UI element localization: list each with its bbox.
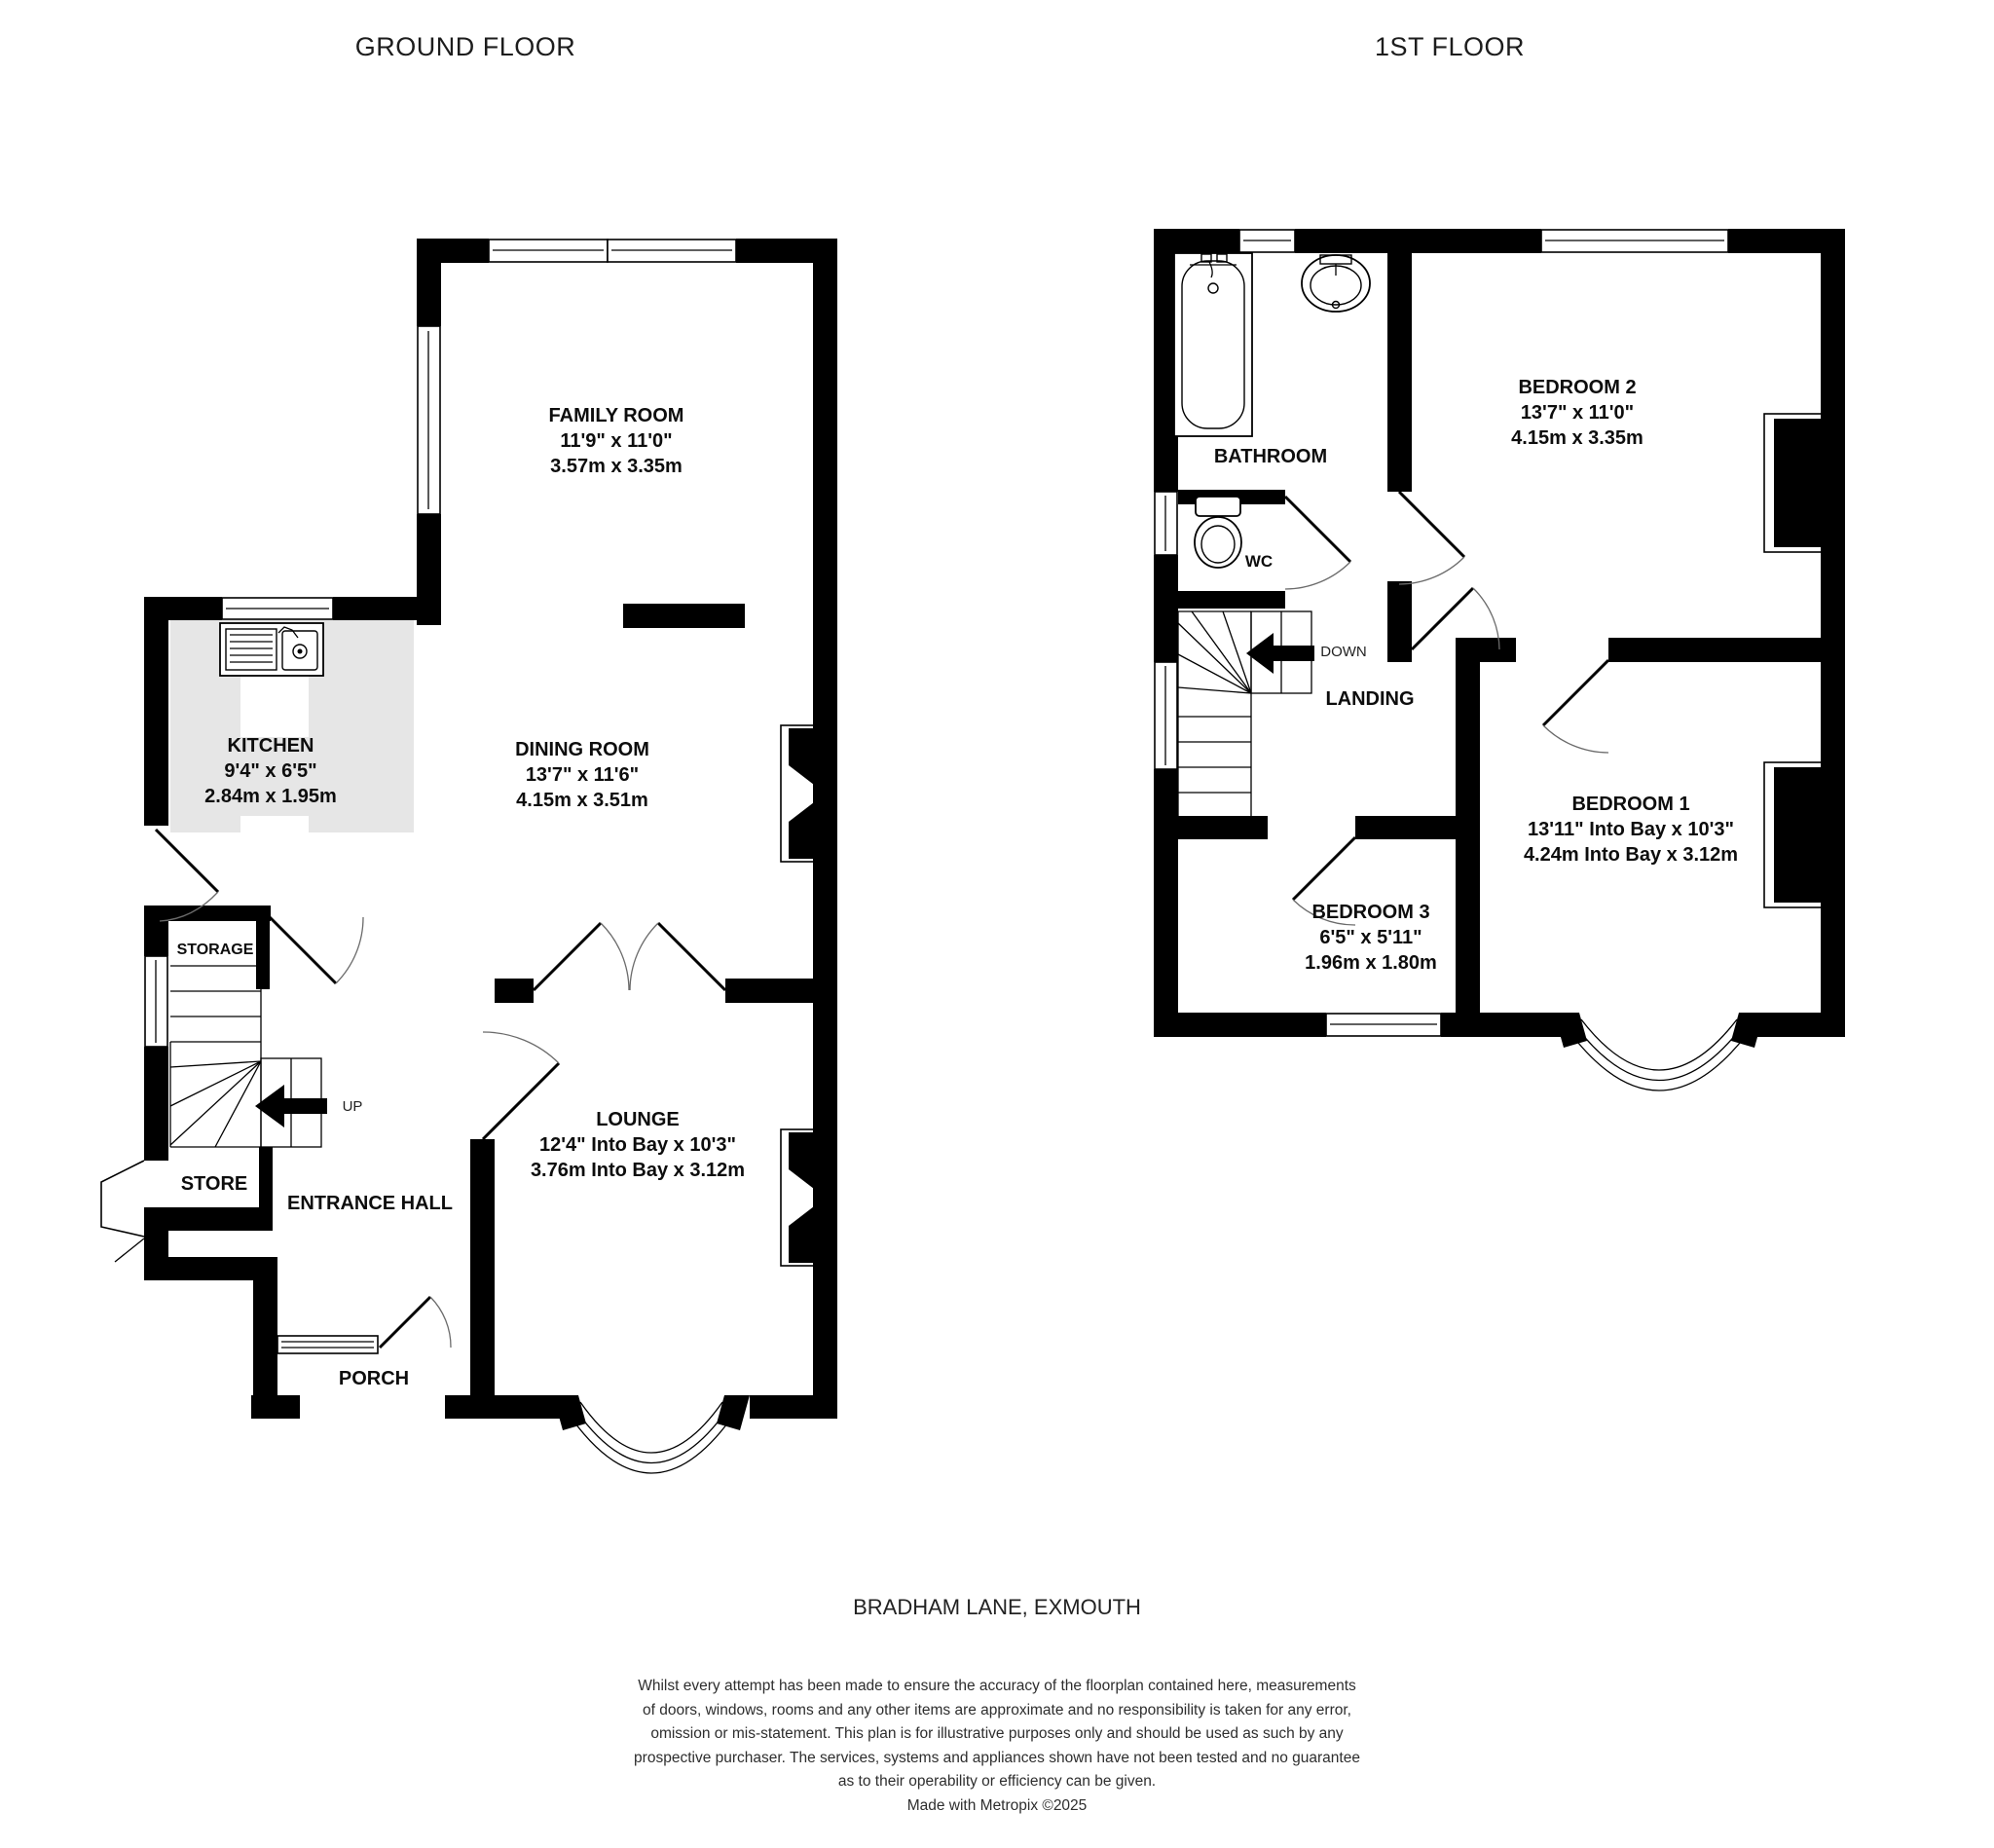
first-floor-plan: BATHROOM WC BEDROOM 2 13'7" x 11'0" 4.15… (1154, 229, 1845, 1090)
bathroom-label: BATHROOM (1214, 446, 1327, 467)
bedroom2-dims-imperial: 13'7" x 11'0" (1521, 402, 1634, 424)
property-address: BRADHAM LANE, EXMOUTH (853, 1595, 1141, 1620)
down-arrow-icon (1246, 633, 1314, 674)
disclaimer-line: of doors, windows, rooms and any other i… (588, 1699, 1406, 1723)
kitchen-label: KITCHEN (228, 735, 314, 757)
kitchen-dims-metric: 2.84m x 1.95m (204, 786, 337, 807)
window (1155, 662, 1177, 769)
window (1541, 230, 1728, 252)
window (1155, 492, 1177, 555)
staircase-first (1178, 611, 1314, 816)
kitchen-dims-imperial: 9'4" x 6'5" (224, 760, 316, 782)
window (1326, 1014, 1441, 1036)
window (145, 956, 167, 1047)
chimney-bedroom2 (1764, 414, 1825, 552)
porch-label: PORCH (339, 1368, 409, 1389)
bedroom3-dims-imperial: 6'5" x 5'11" (1319, 927, 1422, 948)
window (418, 326, 440, 514)
door-dining-left (534, 923, 629, 990)
disclaimer-line: as to their operability or efficiency ca… (588, 1770, 1406, 1794)
family-room-dims-imperial: 11'9" x 11'0" (560, 430, 672, 452)
family-room-dims-metric: 3.57m x 3.35m (550, 456, 683, 477)
first-walls (1154, 229, 1845, 1037)
disclaimer: Whilst every attempt has been made to en… (588, 1675, 1406, 1818)
kitchen-sink-icon (220, 623, 323, 676)
dining-room-dims-imperial: 13'7" x 11'6" (526, 764, 639, 786)
dining-room-label: DINING ROOM (515, 739, 649, 760)
toilet-icon (1195, 497, 1241, 568)
fireplace-lounge (781, 1129, 816, 1266)
landing-label: LANDING (1325, 688, 1414, 710)
family-room-label: FAMILY ROOM (549, 405, 684, 426)
metropix-credit: Made with Metropix ©2025 (588, 1794, 1406, 1819)
lounge-label: LOUNGE (596, 1109, 680, 1130)
window (608, 240, 736, 262)
store-label: STORE (181, 1173, 248, 1195)
disclaimer-line: Whilst every attempt has been made to en… (588, 1675, 1406, 1699)
fireplace-dining (781, 725, 816, 862)
window (489, 240, 608, 262)
floorplan-page: GROUND FLOOR 1ST FLOOR (0, 0, 1994, 1848)
staircase-ground (170, 959, 327, 1147)
bay-window-lounge (553, 1395, 750, 1473)
door-bathroom (1399, 492, 1464, 584)
window (277, 1336, 378, 1353)
door-wc (1285, 497, 1350, 589)
window (1239, 230, 1295, 252)
chimney-bedroom1 (1764, 762, 1825, 907)
bedroom3-label: BEDROOM 3 (1311, 902, 1429, 923)
disclaimer-line: prospective purchaser. The services, sys… (588, 1747, 1406, 1771)
door-dining-right (630, 923, 725, 990)
bathroom-sink-icon (1302, 255, 1370, 312)
bedroom1-label: BEDROOM 1 (1571, 794, 1689, 815)
storage-label: STORAGE (177, 942, 254, 958)
lounge-dims-imperial: 12'4" Into Bay x 10'3" (539, 1134, 736, 1156)
disclaimer-line: omission or mis-statement. This plan is … (588, 1722, 1406, 1747)
bedroom1-dims-imperial: 13'11" Into Bay x 10'3" (1528, 819, 1734, 840)
door-bedroom1 (1543, 660, 1608, 753)
ground-floor-plan: FAMILY ROOM 11'9" x 11'0" 3.57m x 3.35m … (101, 239, 837, 1473)
door-lounge (483, 1032, 559, 1139)
dining-room-dims-metric: 4.15m x 3.51m (516, 790, 648, 811)
down-label: DOWN (1320, 644, 1367, 660)
bedroom2-dims-metric: 4.15m x 3.35m (1511, 427, 1643, 449)
door-storage (270, 917, 363, 983)
entrance-hall-label: ENTRANCE HALL (287, 1193, 453, 1214)
floorplan-drawing: FAMILY ROOM 11'9" x 11'0" 3.57m x 3.35m … (0, 0, 1994, 1848)
bay-window-bedroom1 (1554, 1013, 1764, 1090)
door-front (380, 1297, 451, 1348)
window (222, 598, 333, 619)
bathtub-icon (1174, 253, 1252, 436)
lounge-dims-metric: 3.76m Into Bay x 3.12m (531, 1160, 745, 1181)
bedroom3-dims-metric: 1.96m x 1.80m (1305, 952, 1437, 974)
wc-label: WC (1245, 552, 1273, 571)
up-label: UP (343, 1098, 363, 1115)
bedroom2-label: BEDROOM 2 (1518, 377, 1636, 398)
bedroom1-dims-metric: 4.24m Into Bay x 3.12m (1524, 844, 1738, 866)
door-store-flap (101, 1161, 144, 1262)
